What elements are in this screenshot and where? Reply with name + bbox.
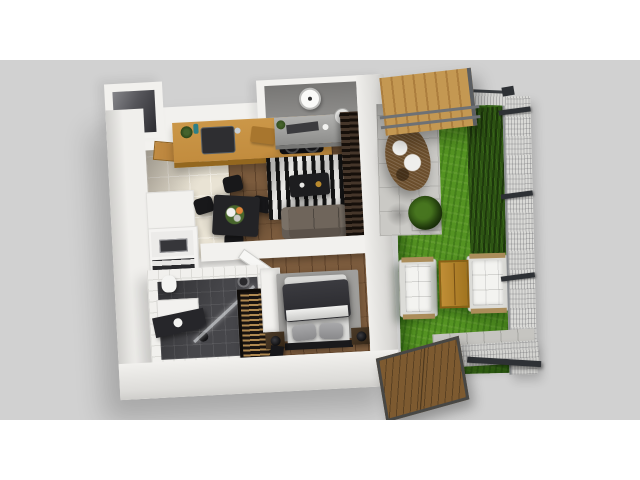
pillow-right	[319, 323, 343, 339]
hedge-row	[466, 107, 508, 254]
wood-deck	[376, 336, 469, 420]
console-plant	[276, 120, 285, 129]
console-tray	[286, 121, 319, 134]
faucet	[234, 127, 240, 133]
potted-plant	[408, 195, 443, 230]
console-table	[274, 114, 350, 150]
garden-coffee-table	[438, 260, 469, 309]
kitchen-sink	[200, 126, 235, 155]
herb-plant	[180, 126, 193, 139]
bottle	[193, 124, 199, 134]
oven-window	[159, 238, 188, 252]
pillow-left	[291, 323, 317, 342]
sofa-seams	[289, 207, 340, 230]
kitchen-cabinet	[146, 190, 196, 230]
garden	[374, 74, 545, 410]
toilet	[161, 275, 177, 293]
table-lamp	[356, 331, 367, 342]
sofa-cushions	[405, 264, 432, 313]
built-in-oven	[151, 230, 194, 257]
cutting-board	[250, 126, 276, 145]
double-bed	[284, 274, 350, 349]
apartment	[104, 68, 400, 400]
fence-corner-post	[501, 86, 514, 97]
outdoor-sofa-right	[466, 255, 509, 312]
outdoor-sofa-left	[398, 259, 438, 318]
floorplan-render	[0, 60, 640, 420]
console-mug	[322, 124, 328, 130]
coffee-table	[289, 172, 331, 197]
wood-pergola	[379, 68, 477, 136]
living-sofa	[281, 204, 349, 239]
nightstand-right	[351, 327, 371, 345]
flower-centerpiece	[223, 203, 250, 226]
sofa-cushions	[471, 260, 503, 306]
plant-pot	[411, 198, 442, 231]
dining-table	[212, 195, 260, 237]
render-canvas	[0, 0, 640, 480]
